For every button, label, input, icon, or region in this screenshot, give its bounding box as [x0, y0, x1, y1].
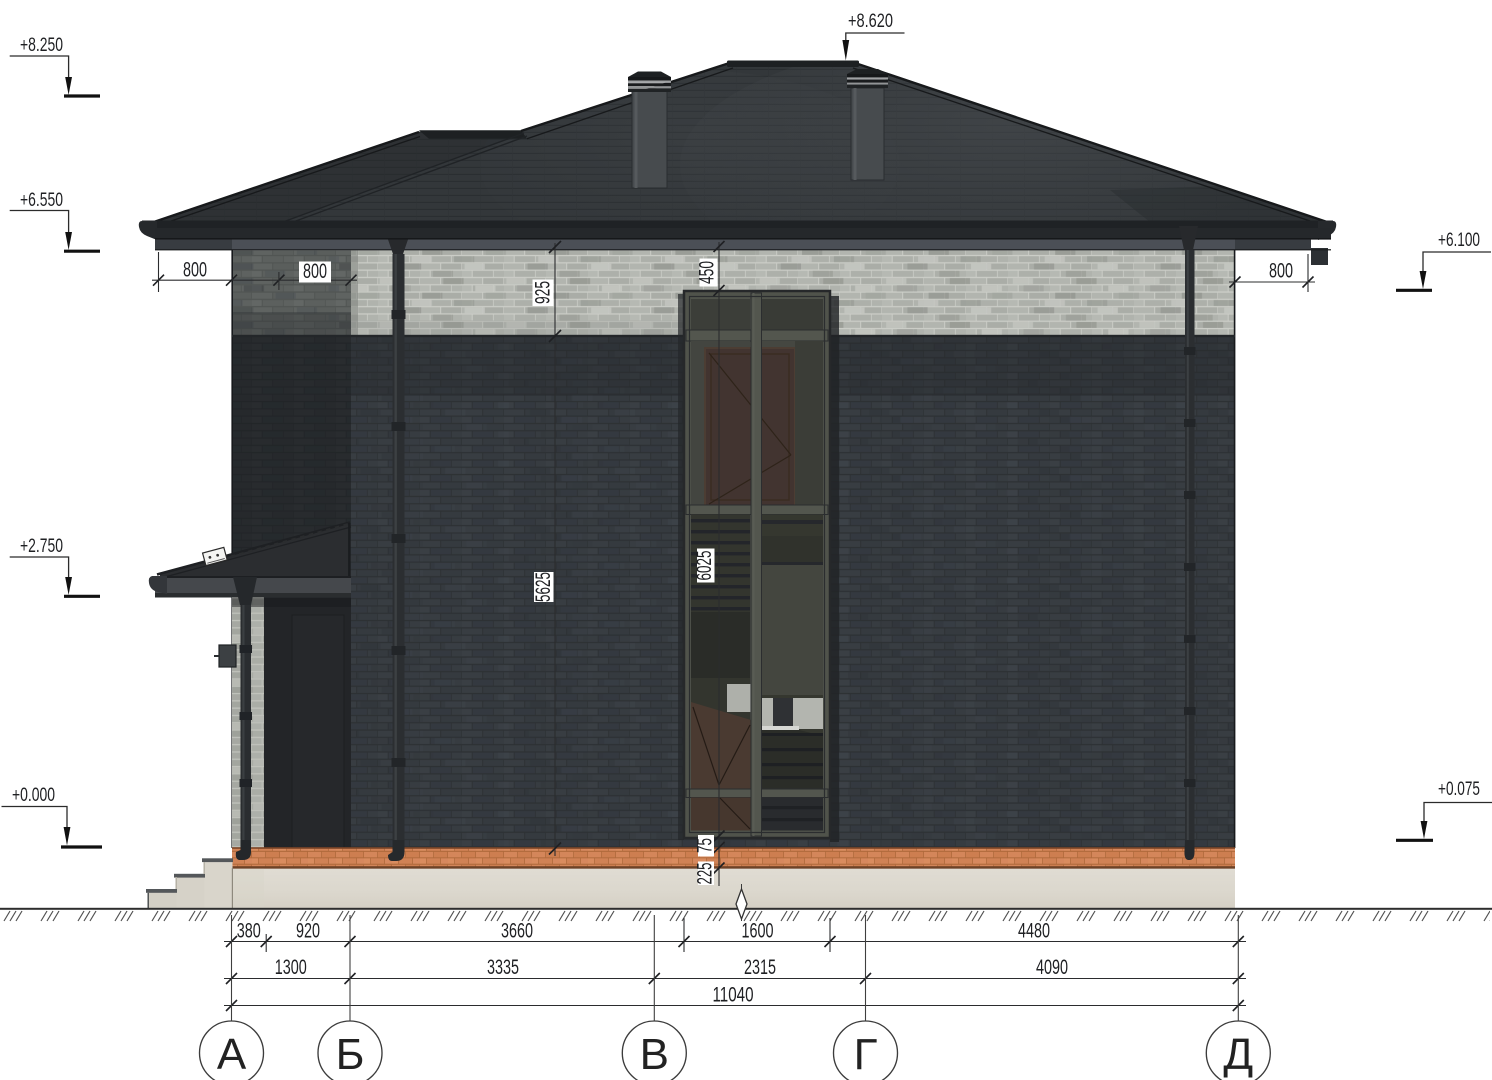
svg-text:1300: 1300	[275, 956, 307, 979]
svg-text:225: 225	[694, 863, 717, 885]
svg-text:925: 925	[532, 281, 555, 304]
svg-text:4480: 4480	[1018, 920, 1050, 943]
svg-text:6025: 6025	[693, 551, 716, 581]
svg-text:450: 450	[696, 261, 719, 284]
svg-text:800: 800	[183, 259, 207, 282]
svg-text:2315: 2315	[744, 956, 776, 979]
svg-text:800: 800	[1269, 260, 1293, 283]
svg-text:В: В	[640, 1030, 669, 1079]
svg-text:+0.000: +0.000	[12, 785, 55, 806]
svg-text:920: 920	[296, 920, 320, 943]
svg-text:А: А	[217, 1030, 247, 1079]
svg-text:Д: Д	[1223, 1030, 1253, 1079]
svg-text:75: 75	[694, 838, 717, 853]
svg-text:11040: 11040	[713, 984, 754, 1007]
svg-text:4090: 4090	[1036, 956, 1068, 979]
svg-text:380: 380	[237, 920, 261, 943]
svg-text:+0.075: +0.075	[1438, 779, 1480, 800]
svg-text:3335: 3335	[487, 956, 519, 979]
svg-text:Б: Б	[336, 1030, 365, 1079]
svg-text:5625: 5625	[532, 572, 555, 602]
svg-text:800: 800	[303, 260, 327, 283]
svg-text:+8.620: +8.620	[848, 11, 893, 32]
svg-text:1600: 1600	[742, 920, 774, 943]
svg-text:+6.100: +6.100	[1438, 230, 1480, 251]
svg-text:+8.250: +8.250	[20, 35, 63, 56]
svg-text:Г: Г	[854, 1030, 878, 1079]
svg-text:+2.750: +2.750	[20, 536, 63, 557]
svg-text:3660: 3660	[501, 920, 533, 943]
svg-text:+6.550: +6.550	[20, 190, 63, 211]
